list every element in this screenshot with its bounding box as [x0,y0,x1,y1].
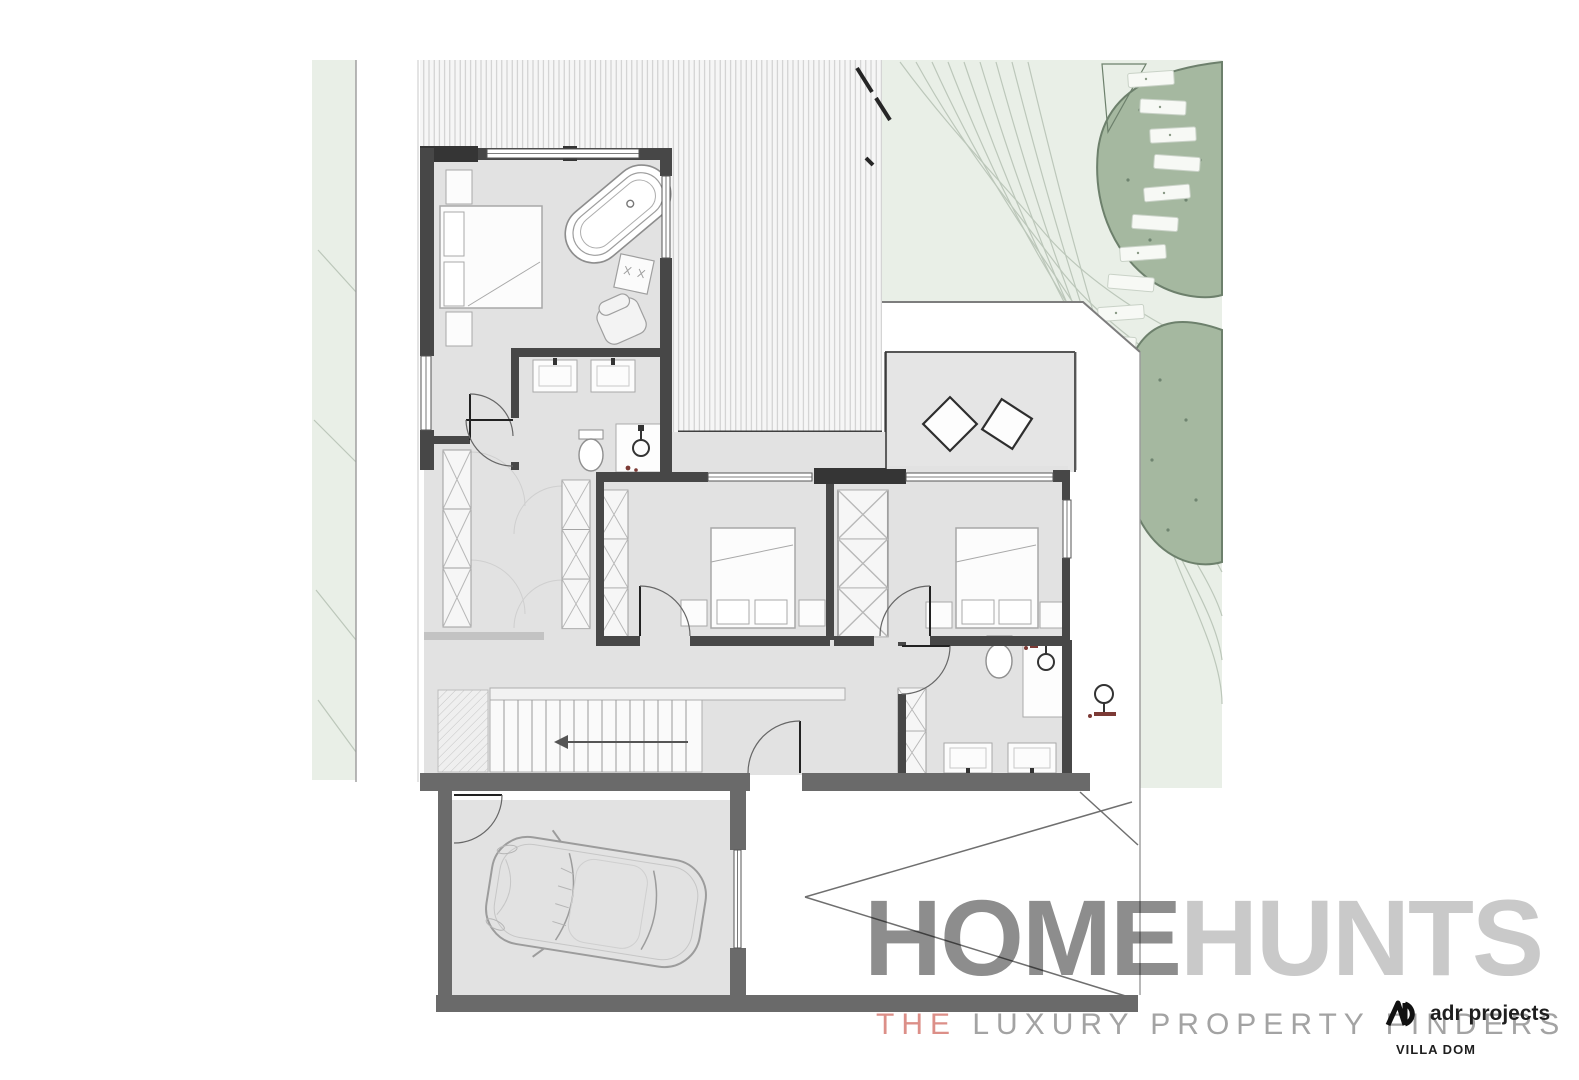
stair-void-hatch [438,690,488,772]
side-table [614,254,654,294]
pillow [962,600,994,624]
wardrobe-column-east [562,480,590,629]
adr-monogram-icon [1384,1000,1426,1028]
left-lawn-strip [312,60,418,782]
faucet-icon [553,358,557,365]
pillow [755,600,787,624]
floor-plan-page: HOMEHUNTS THE LUXURY PROPERTY FINDERS ad… [0,0,1579,1080]
watermark: HOMEHUNTS [864,884,1542,992]
nightstand [446,312,472,346]
tagline-highlight: THE [876,1008,957,1041]
pillow [999,600,1031,624]
shower [616,424,666,472]
bedroom-2-wardrobe [600,490,628,637]
bedroom-3-wardrobe [838,490,888,637]
window-master-north [487,149,639,158]
nightstand [799,600,825,626]
toilet [579,430,603,471]
shower-floor [1023,645,1065,717]
pillow [717,600,749,624]
garage-floor [452,800,734,996]
stair-landing [490,688,845,700]
window-master-west [421,356,431,430]
window-bedroom-3-east [1063,500,1071,558]
adr-projects-logo: adr projects [1384,1000,1550,1028]
watermark-brand-primary: HOME [864,877,1180,998]
terrace [885,352,1075,472]
wardrobe-column-west [443,450,471,627]
studio-name: adr projects [1430,1002,1550,1026]
window-master-east [662,176,670,258]
pillow [444,212,464,256]
nightstand [446,170,472,204]
faucet-icon [611,358,615,365]
window-bedroom-2-north [708,473,812,481]
project-name: VILLA DOM [1396,1042,1476,1057]
garage-door-panel [734,850,741,948]
watermark-brand-secondary: HUNTS [1180,877,1542,998]
pillow [444,262,464,306]
window-bedroom-3-north [906,473,1053,481]
